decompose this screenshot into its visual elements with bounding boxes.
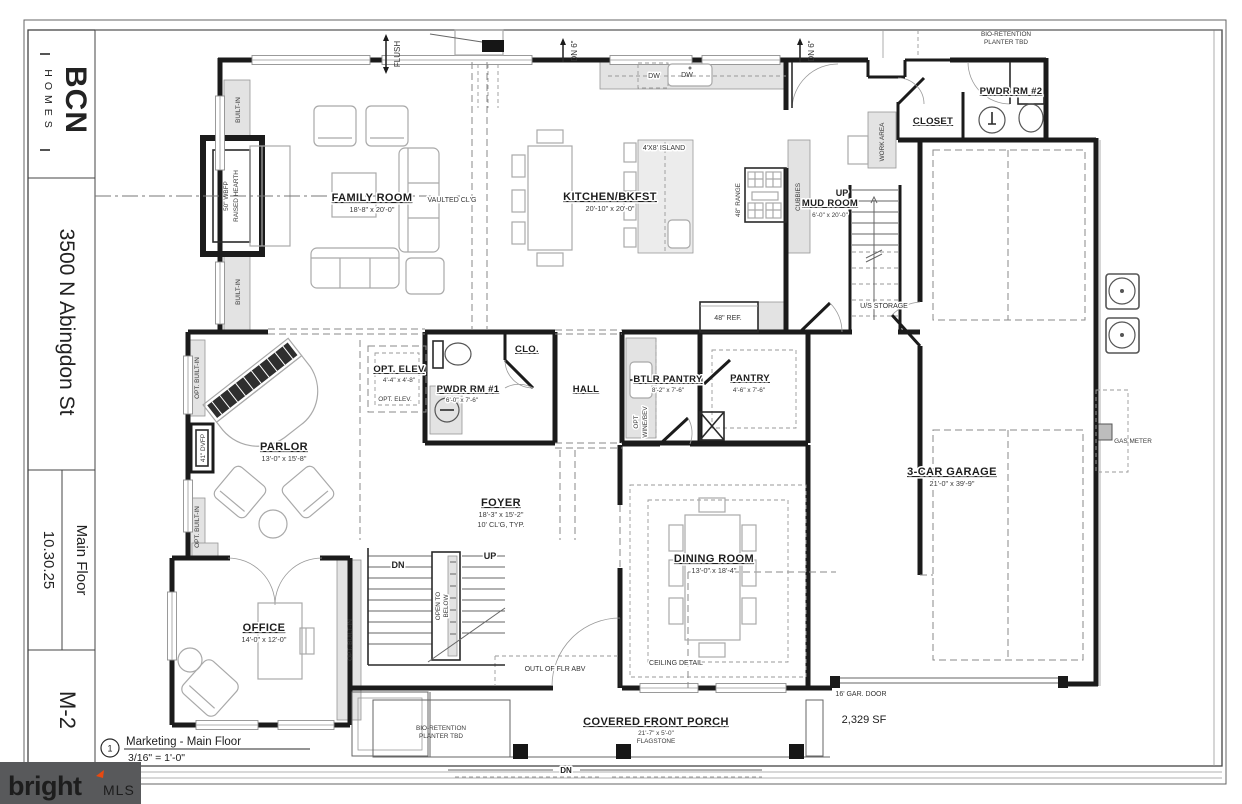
label-foyer-dn: DN: [392, 560, 405, 570]
label-opt-builtin-parlor-up: OPT. BUILT-IN: [194, 357, 201, 399]
floor-plan-sheet: BCN HOMES 3500 N Abingdon St 10.30.25 Ma…: [0, 0, 1242, 804]
label-mud-room-dims: 6'-0" x 20'-0": [812, 212, 848, 219]
label-total-sf: 2,329 SF: [842, 714, 887, 726]
drawing-title: 1 Marketing - Main Floor 3/16" = 1'-0": [101, 736, 310, 764]
floor-plan-drawing: BCN HOMES 3500 N Abingdon St 10.30.25 Ma…: [0, 0, 1242, 804]
watermark-brand: bright: [8, 771, 82, 801]
label-bio-bottom-1: BIO-RETENTION: [416, 725, 466, 732]
label-outl-flr-abv: OUTL OF FLR ABV: [525, 666, 586, 673]
label-ref: 48" REF.: [714, 315, 741, 322]
label-opt-builtin-office: OPT. BUILT-IN: [347, 619, 354, 661]
label-wbfp-1: 50" WBFP: [223, 181, 230, 211]
sheet-number: M-2: [55, 691, 80, 729]
label-pantry-dims: 4'-6" x 7'-6": [733, 387, 765, 394]
detail-number: 1: [107, 744, 112, 754]
sheet-address: 3500 N Abingdon St: [55, 229, 78, 416]
label-island: 4'X8' ISLAND: [643, 145, 685, 152]
label-foyer-clg: 10' CL'G, TYP.: [477, 520, 524, 529]
label-dw2: DW: [681, 72, 693, 79]
label-pwdr1: PWDR RM #1: [437, 384, 500, 395]
bcn-homes-logo: BCN HOMES: [40, 54, 92, 150]
label-kitchen-dims: 20'-10" x 20'-0": [586, 204, 635, 213]
label-dining-dims: 13'-0" x 18'-4": [692, 566, 737, 575]
label-porch-dims: 21'-7" x 5'-0": [638, 730, 674, 737]
label-pwdr1-dims: 6'-0" x 7'-6": [446, 397, 478, 404]
label-wine-2: WINE/BEV: [642, 406, 649, 438]
label-pwdr2: PWDR RM #2: [980, 86, 1043, 97]
label-kitchen: KITCHEN/BKFST: [563, 191, 657, 203]
detail-title: Marketing - Main Floor: [126, 736, 241, 748]
label-parlor-dims: 13'-0" x 15'-8": [262, 454, 307, 463]
label-open-below-2: BELOW: [443, 593, 450, 617]
label-pantry: PANTRY: [730, 373, 770, 384]
label-gas-meter: GAS METER: [1114, 438, 1152, 445]
label-wbfp-2: RAISED HEARTH: [233, 170, 240, 222]
label-range: 48" RANGE: [735, 183, 742, 217]
label-ceiling-detail: CEILING DETAIL: [649, 660, 703, 667]
label-closet: CLOSET: [913, 116, 953, 127]
logo-sub-text: HOMES: [42, 69, 54, 133]
logo-main-text: BCN: [59, 66, 92, 134]
label-porch: COVERED FRONT PORCH: [583, 716, 729, 728]
label-dw1: DW: [648, 73, 660, 80]
label-vaulted-clg: VAULTED CL'G: [428, 197, 477, 204]
label-btlr: BTLR PANTRY: [633, 374, 703, 385]
label-mud-room: MUD ROOM: [802, 198, 858, 209]
label-porch-material: FLAGSTONE: [637, 738, 676, 745]
watermark: bright MLS: [0, 762, 141, 804]
label-us-storage: U/S STORAGE: [860, 303, 908, 310]
label-bio-top-2: PLANTER TBD: [984, 39, 1028, 46]
label-mud-up: UP: [836, 188, 849, 198]
label-gar-door: 16' GAR. DOOR: [835, 691, 886, 698]
sheet-date: 10.30.25: [40, 531, 57, 589]
label-built-in-upper: BUILT-IN: [235, 97, 242, 123]
label-foyer-up: UP: [484, 551, 497, 561]
label-dn6-left: DN 6": [570, 40, 579, 61]
label-flush: FLUSH: [393, 41, 402, 67]
label-bio-top-1: BIO-RETENTION: [981, 31, 1031, 38]
label-parlor: PARLOR: [260, 441, 308, 453]
label-office: OFFICE: [243, 622, 286, 634]
label-clo: CLO.: [515, 344, 539, 355]
label-bio-bottom-2: PLANTER TBD: [419, 733, 463, 740]
label-open-below-1: OPEN TO: [435, 592, 442, 621]
label-built-in-lower: BUILT-IN: [235, 279, 242, 305]
label-family-room-dims: 18'-8" x 20'-0": [350, 205, 395, 214]
label-dn6-right: DN 6": [807, 40, 816, 61]
label-opt-elev-small: OPT. ELEV.: [378, 396, 412, 403]
label-opt-elev: OPT. ELEV: [373, 364, 425, 375]
sheet-floor-name: Main Floor: [73, 525, 90, 596]
label-foyer-dims: 18'-3" x 15'-2": [479, 510, 524, 519]
label-hall: HALL: [573, 384, 600, 395]
label-dvfp: 41" DVFP: [200, 434, 207, 462]
label-wine-1: OPT: [633, 415, 640, 428]
label-garage: 3-CAR GARAGE: [907, 466, 997, 478]
flush-arrow: [383, 34, 389, 74]
mudroom-stairs: [852, 190, 898, 320]
label-family-room: FAMILY ROOM: [332, 192, 413, 204]
label-opt-elev-dims: 4'-4" x 4'-8": [383, 377, 415, 384]
property-lines: [95, 30, 1222, 686]
title-block: BCN HOMES 3500 N Abingdon St 10.30.25 Ma…: [28, 30, 95, 766]
label-opt-builtin-parlor-low: OPT. BUILT-IN: [194, 506, 201, 548]
label-foyer: FOYER: [481, 497, 521, 509]
watermark-suffix: MLS: [103, 782, 135, 798]
label-office-dims: 14'-0" x 12'-0": [242, 635, 287, 644]
label-btlr-dims: 8'-2" x 7'-6": [652, 387, 684, 394]
label-garage-dims: 21'-0" x 39'-9": [930, 479, 975, 488]
label-porch-dn: DN: [560, 766, 572, 775]
label-work-area: WORK AREA: [879, 122, 886, 161]
label-dining: DINING ROOM: [674, 553, 754, 565]
